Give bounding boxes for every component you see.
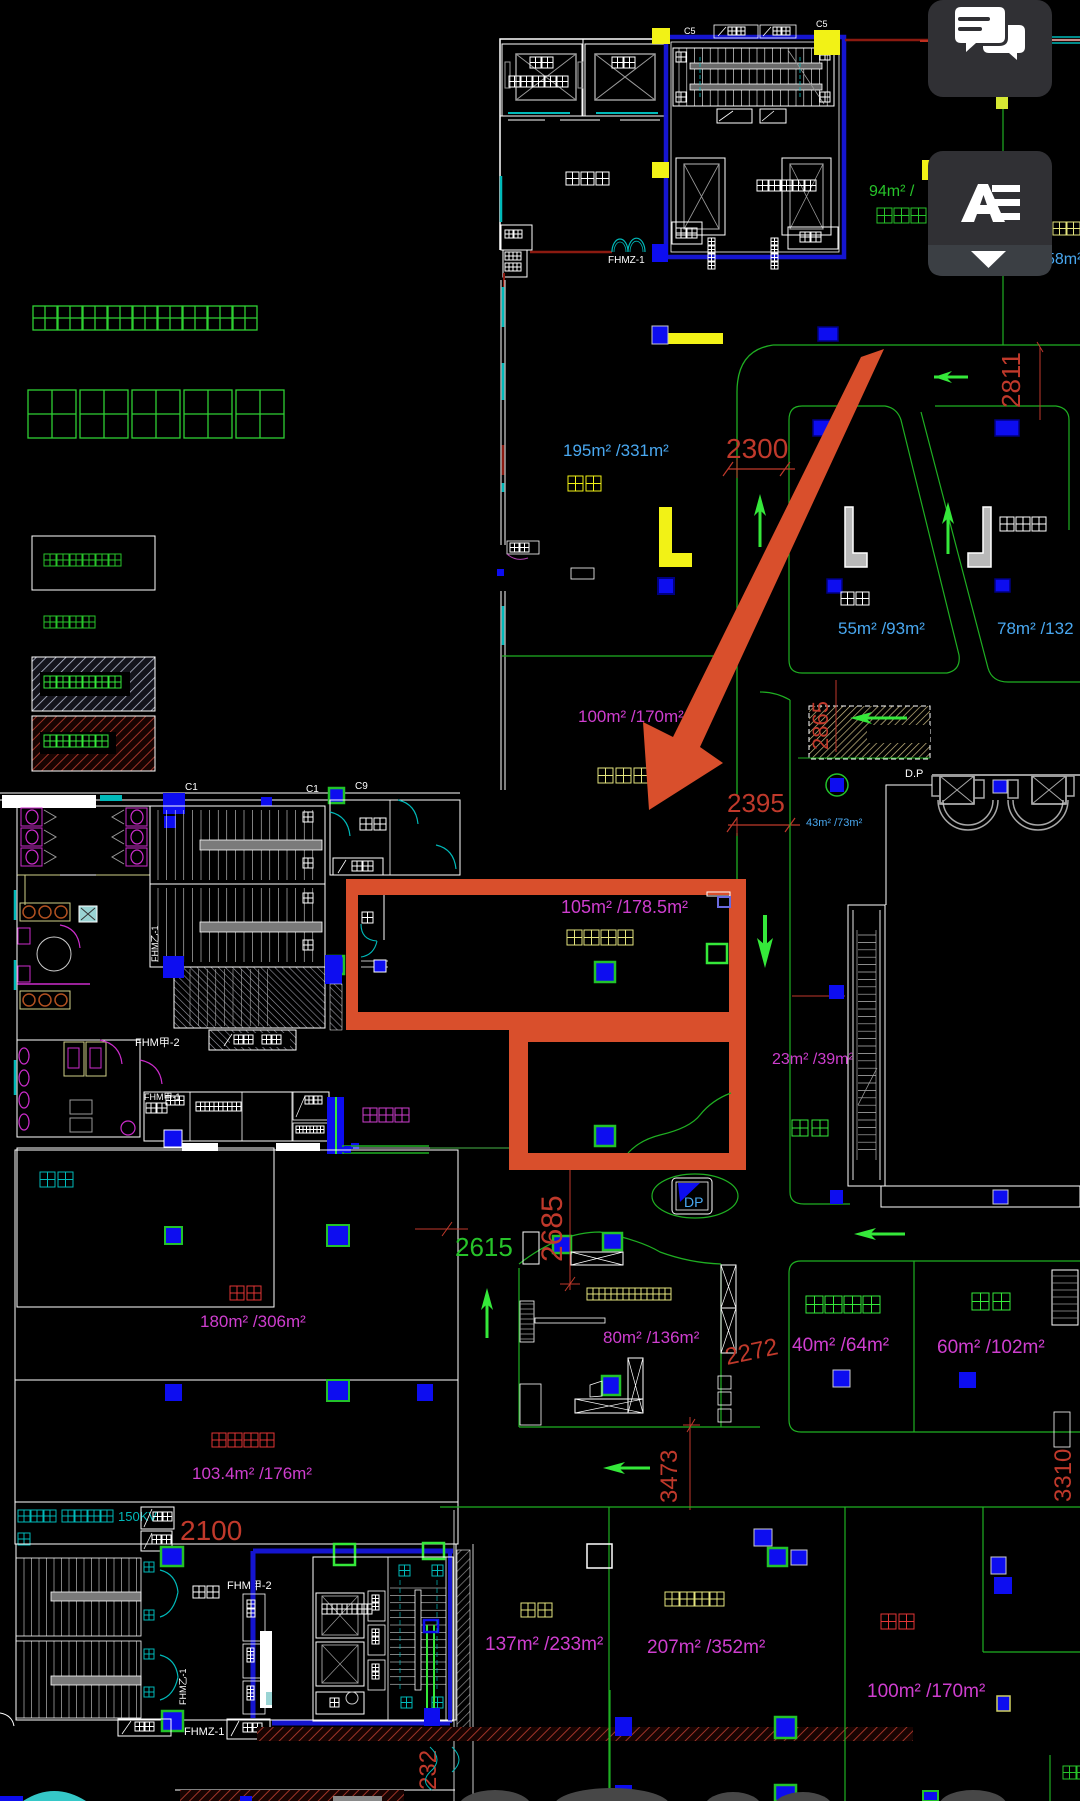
svg-text:FHM甲-2: FHM甲-2 <box>135 1037 180 1049</box>
svg-text:C1: C1 <box>185 782 198 793</box>
svg-text:C5: C5 <box>816 19 828 29</box>
svg-text:FHMZ-1: FHMZ-1 <box>608 255 645 266</box>
svg-text:2811: 2811 <box>996 352 1026 408</box>
svg-text:2615: 2615 <box>455 1232 513 1262</box>
svg-text:103.4m² /176m²: 103.4m² /176m² <box>192 1464 312 1483</box>
svg-text:100m² /170m²: 100m² /170m² <box>578 707 684 726</box>
svg-text:2300: 2300 <box>726 433 788 464</box>
svg-text:2100: 2100 <box>180 1515 242 1546</box>
svg-text:C9: C9 <box>355 781 368 792</box>
svg-text:3473: 3473 <box>656 1450 683 1503</box>
svg-text:80m² /136m²: 80m² /136m² <box>603 1328 700 1347</box>
svg-text:2395: 2395 <box>727 788 785 818</box>
svg-text:55m² /93m²: 55m² /93m² <box>838 619 925 638</box>
svg-text:FHM甲-2: FHM甲-2 <box>227 1580 272 1592</box>
svg-text:232: 232 <box>415 1750 442 1790</box>
svg-text:94m² /: 94m² / <box>869 183 915 200</box>
svg-text:195m² /331m²: 195m² /331m² <box>563 441 669 460</box>
svg-text:180m² /306m²: 180m² /306m² <box>200 1312 306 1331</box>
svg-text:2865: 2865 <box>808 701 833 750</box>
svg-text:FHM乙-1: FHM乙-1 <box>178 1669 188 1706</box>
svg-text:FHM乙-1: FHM乙-1 <box>150 926 160 963</box>
svg-text:FHMZ-1: FHMZ-1 <box>184 1726 224 1738</box>
svg-text:C5: C5 <box>684 26 696 36</box>
svg-text:150KV: 150KV <box>118 1509 157 1524</box>
svg-text:23m² /39m²: 23m² /39m² <box>772 1051 854 1068</box>
svg-text:207m² /352m²: 207m² /352m² <box>647 1637 765 1658</box>
svg-text:C1: C1 <box>306 784 319 795</box>
svg-text:43m² /73m²: 43m² /73m² <box>806 817 863 829</box>
svg-text:137m² /233m²: 137m² /233m² <box>485 1634 603 1655</box>
svg-text:78m² /132: 78m² /132 <box>997 619 1074 638</box>
svg-text:60m² /102m²: 60m² /102m² <box>937 1337 1045 1358</box>
svg-text:DP: DP <box>684 1194 703 1210</box>
svg-text:2685: 2685 <box>536 1195 569 1262</box>
svg-text:3310: 3310 <box>1050 1449 1077 1502</box>
svg-text:105m² /178.5m²: 105m² /178.5m² <box>561 897 688 917</box>
svg-text:D.P: D.P <box>905 768 923 780</box>
svg-text:40m² /64m²: 40m² /64m² <box>792 1335 889 1356</box>
svg-text:100m² /170m²: 100m² /170m² <box>867 1681 985 1702</box>
